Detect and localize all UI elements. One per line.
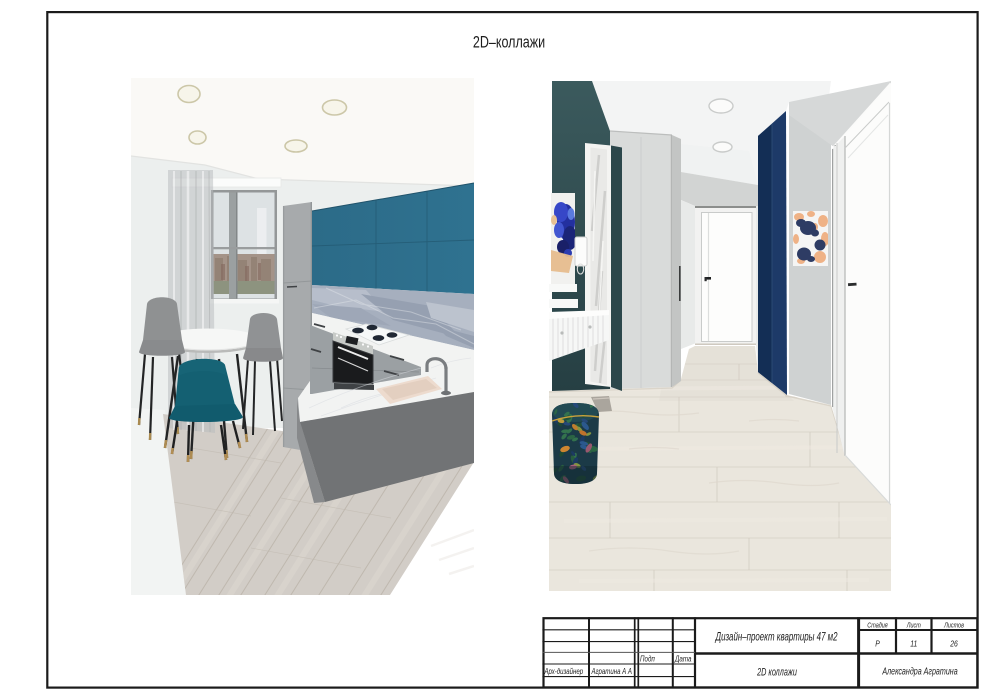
svg-text:11: 11 bbox=[910, 639, 917, 649]
svg-text:Р: Р bbox=[875, 639, 880, 649]
svg-text:2D–коллажи: 2D–коллажи bbox=[473, 34, 545, 52]
svg-text:Стадия: Стадия bbox=[867, 621, 888, 630]
svg-text:Дизайн–проект квартиры 47 м2: Дизайн–проект квартиры 47 м2 bbox=[715, 631, 838, 644]
svg-text:2D коллажи: 2D коллажи bbox=[756, 666, 797, 678]
svg-text:Дата: Дата bbox=[674, 655, 691, 664]
svg-text:Агратина А А: Агратина А А bbox=[591, 667, 632, 676]
svg-text:26: 26 bbox=[949, 639, 958, 649]
svg-text:Подп: Подп bbox=[640, 655, 655, 664]
svg-text:Листов: Листов bbox=[943, 622, 964, 630]
svg-text:Александра Агратина: Александра Агратина bbox=[882, 665, 958, 677]
svg-text:Лист: Лист bbox=[906, 622, 921, 630]
svg-text:Арх-дизайнер: Арх-дизайнер bbox=[544, 667, 584, 676]
